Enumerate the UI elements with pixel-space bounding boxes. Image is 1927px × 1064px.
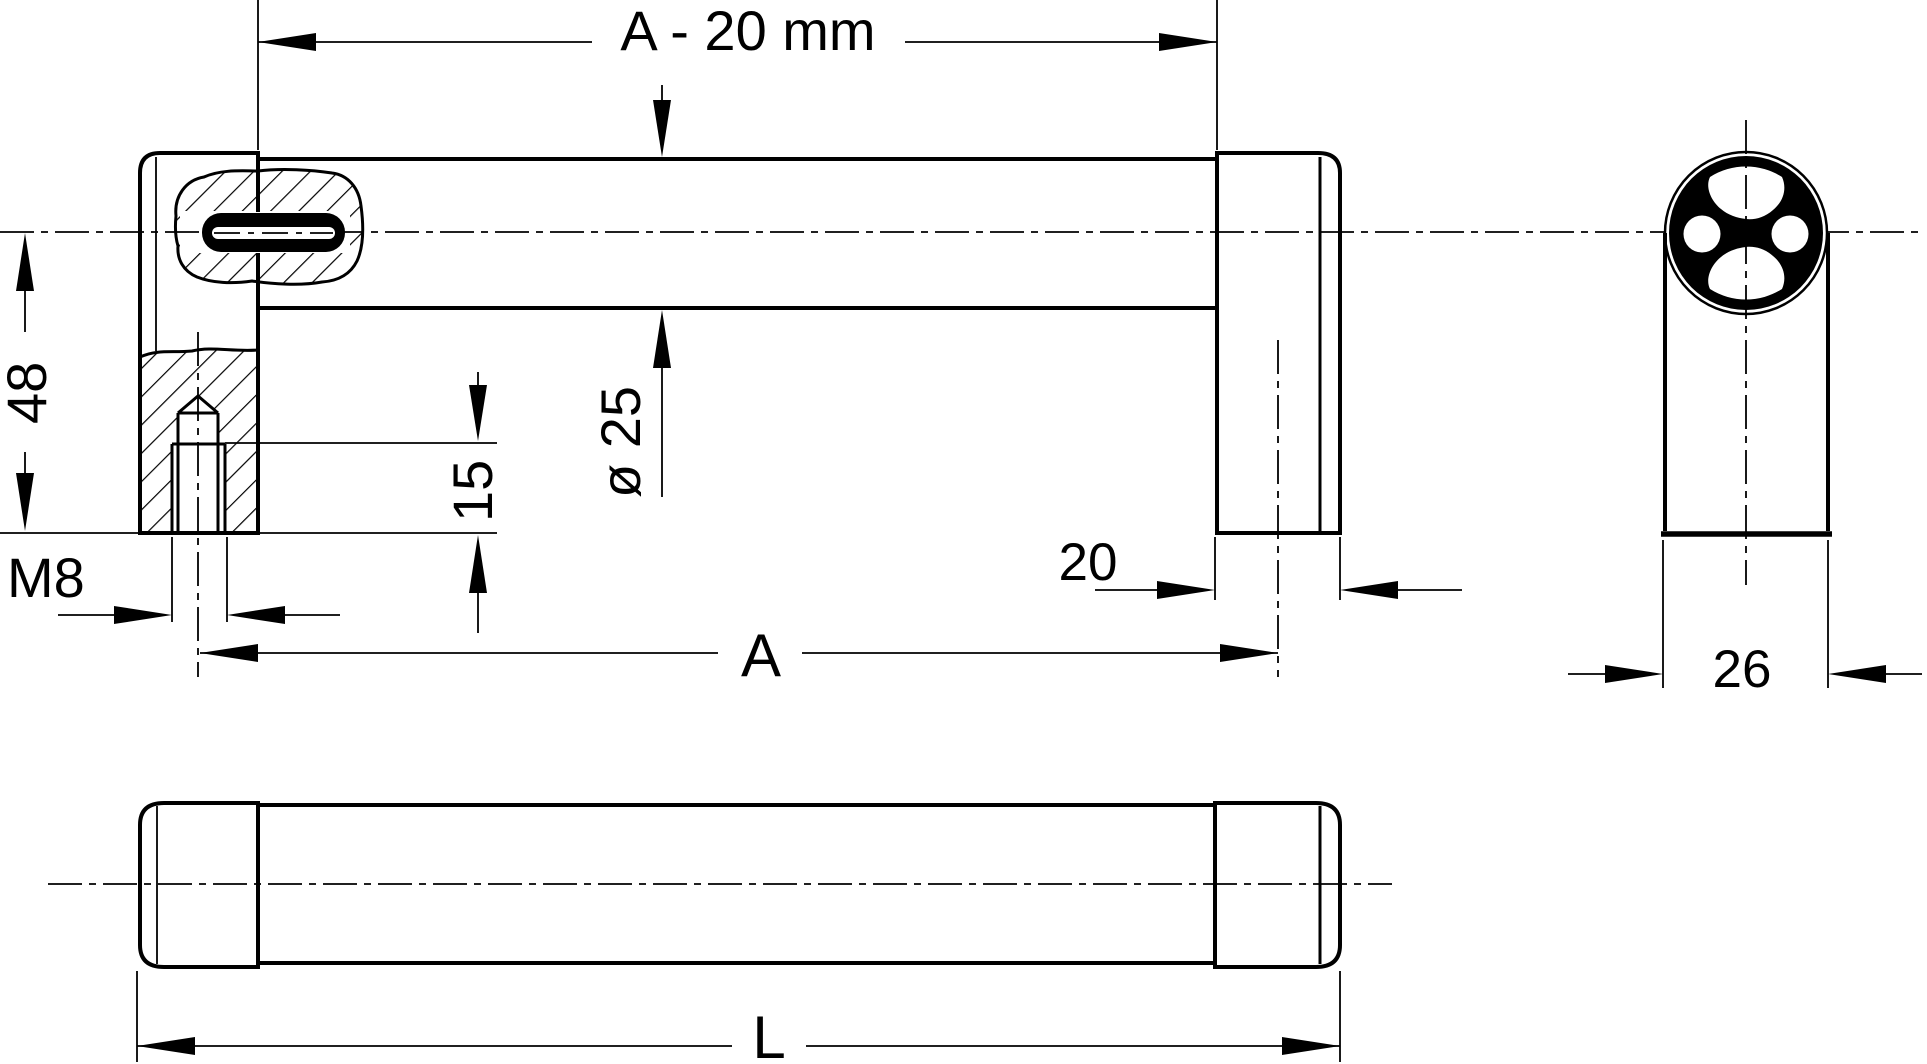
dim-a20: A - 20 mm	[258, 0, 1217, 150]
bottom-cap-right	[1215, 803, 1340, 967]
dim-label-15: 15	[441, 460, 504, 522]
dim-label-48: 48	[0, 362, 58, 424]
technical-drawing-page: A - 20 mm ø 25 48 M8 15	[0, 0, 1927, 1064]
technical-drawing: A - 20 mm ø 25 48 M8 15	[0, 0, 1927, 1064]
dim-label-20: 20	[1059, 533, 1118, 592]
side-view	[1661, 120, 1832, 585]
dim-20: 20	[1059, 533, 1462, 600]
dim-l: L	[137, 971, 1340, 1064]
dim-label-dia25: ø 25	[589, 386, 652, 498]
dim-label-a: A	[741, 622, 781, 689]
bottom-cap-left	[140, 803, 258, 967]
dim-m8: M8	[7, 537, 340, 624]
dim-15: 15	[225, 372, 504, 633]
front-view	[0, 153, 1925, 677]
bottom-view	[48, 803, 1392, 967]
dim-26: 26	[1568, 540, 1922, 699]
dim-a: A	[200, 622, 1278, 689]
screw-slot	[202, 213, 345, 252]
dim-label-l: L	[752, 1004, 785, 1064]
tube-body	[258, 159, 1217, 308]
dim-label-m8: M8	[7, 546, 85, 609]
dim-label-26: 26	[1713, 640, 1772, 699]
dim-label-a20: A - 20 mm	[620, 0, 875, 62]
dim-48: 48	[0, 233, 140, 533]
